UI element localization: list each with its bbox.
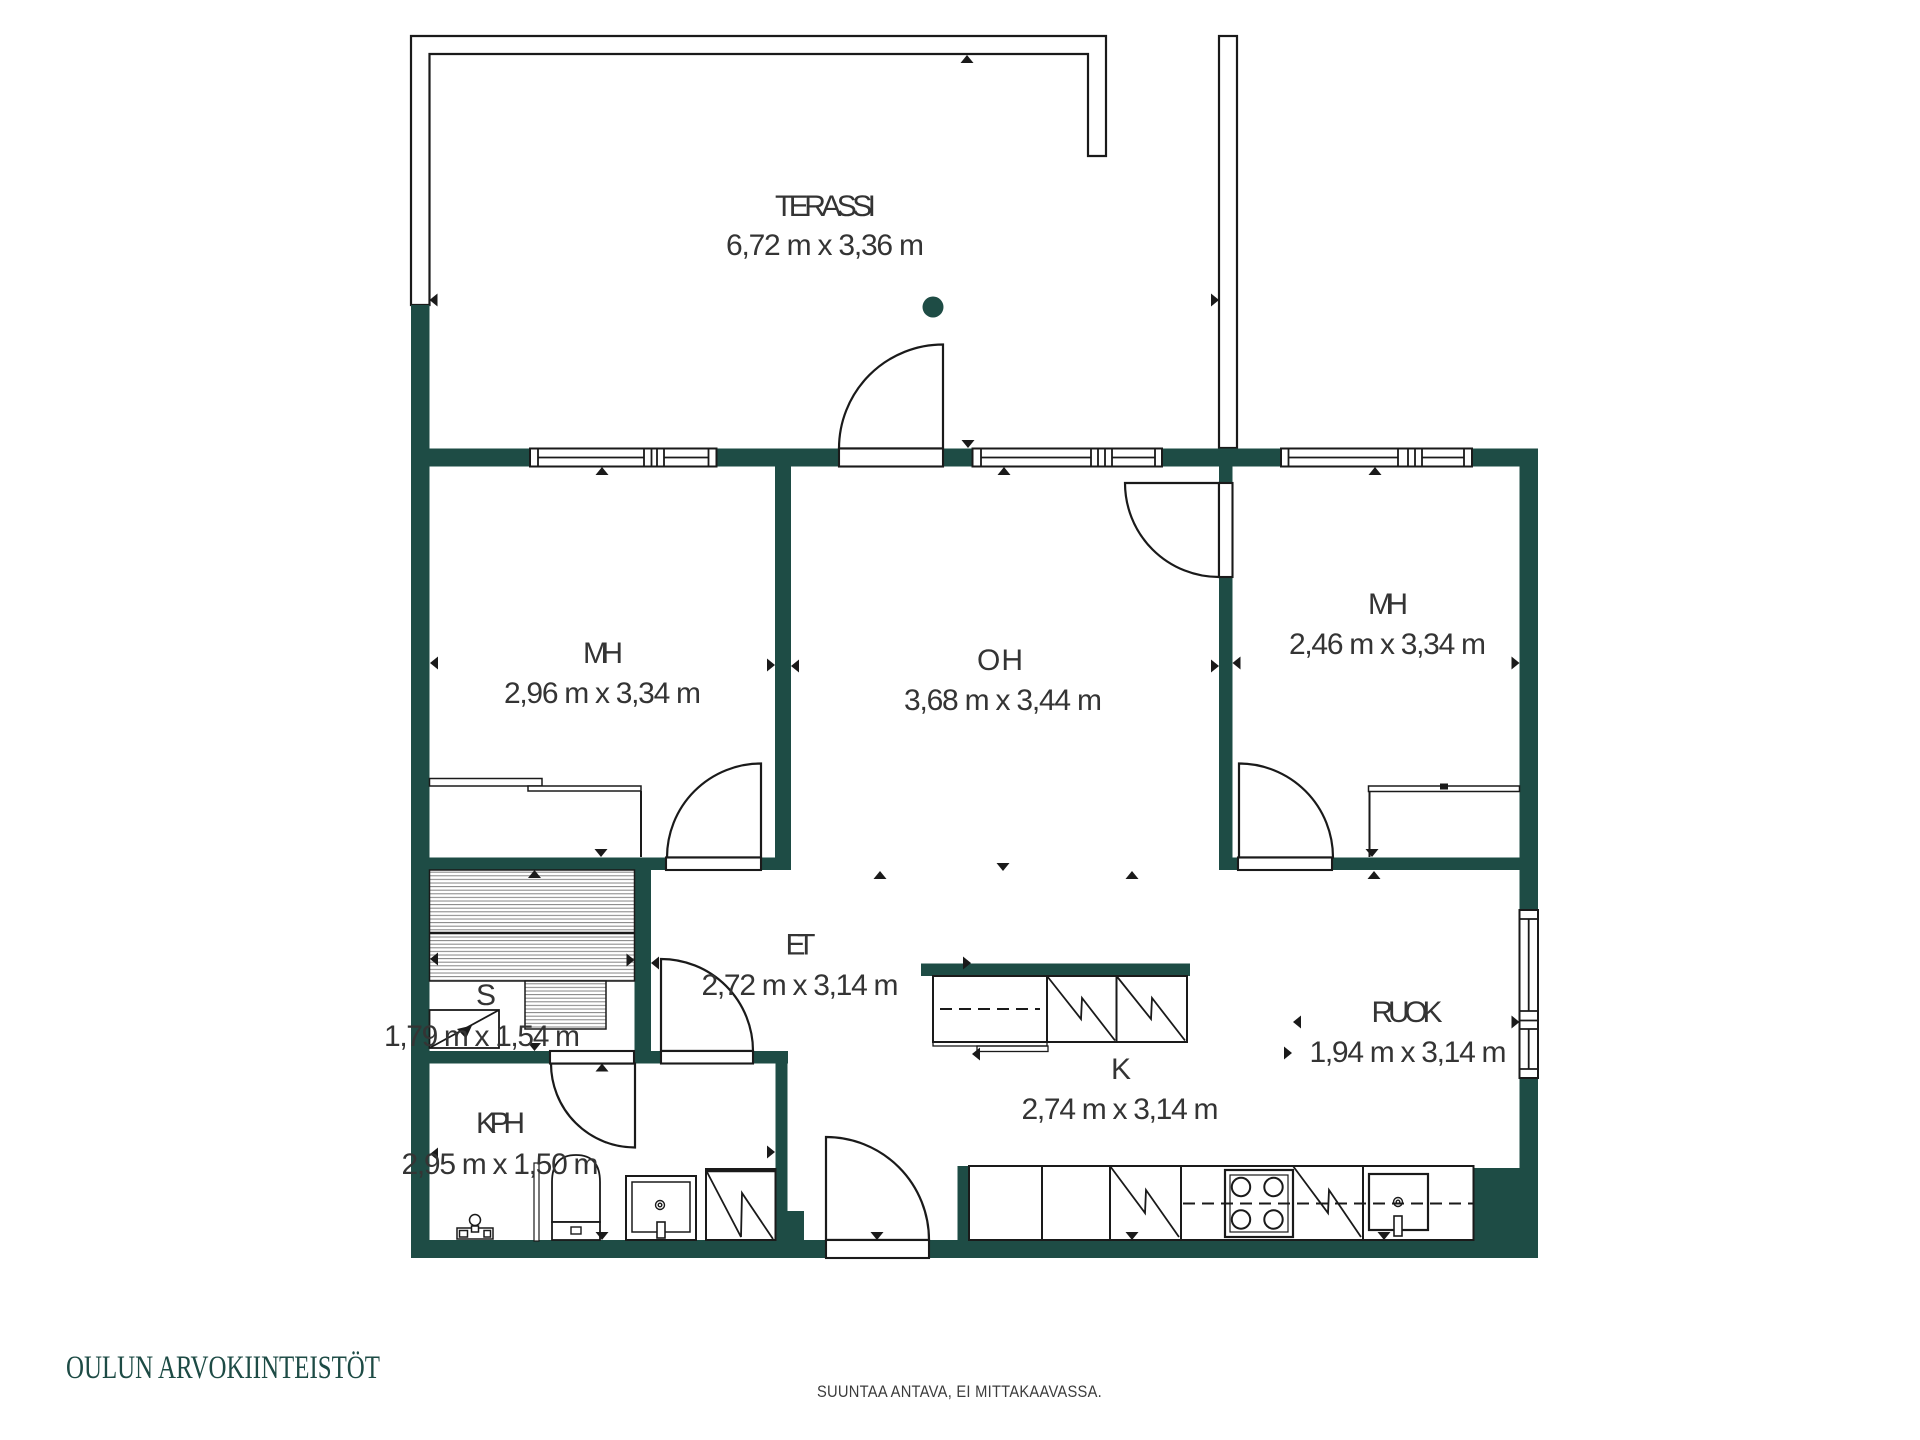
svg-text:S: S: [476, 979, 496, 1012]
svg-text:MH: MH: [1368, 588, 1408, 621]
svg-text:2,95 m x 1,50 m: 2,95 m x 1,50 m: [402, 1148, 599, 1181]
svg-text:1,94 m x 3,14 m: 1,94 m x 3,14 m: [1310, 1036, 1507, 1069]
svg-text:6,72 m x 3,36 m: 6,72 m x 3,36 m: [726, 229, 924, 262]
svg-text:OH: OH: [977, 644, 1023, 677]
svg-text:3,68 m x 3,44 m: 3,68 m x 3,44 m: [904, 684, 1102, 717]
svg-text:2,96 m x 3,34 m: 2,96 m x 3,34 m: [504, 677, 701, 710]
svg-text:MH: MH: [583, 637, 623, 670]
svg-text:TERASSI: TERASSI: [775, 190, 876, 223]
svg-text:K: K: [1111, 1053, 1131, 1086]
svg-text:2,72 m x 3,14 m: 2,72 m x 3,14 m: [702, 969, 899, 1002]
svg-text:SUUNTAA ANTAVA, EI MITTAKAAVAS: SUUNTAA ANTAVA, EI MITTAKAAVASSA.: [817, 1382, 1102, 1401]
svg-text:RUOK: RUOK: [1372, 996, 1443, 1029]
svg-text:2,46 m x 3,34 m: 2,46 m x 3,34 m: [1289, 628, 1486, 661]
svg-text:ET: ET: [786, 929, 816, 962]
svg-text:2,74 m x 3,14 m: 2,74 m x 3,14 m: [1022, 1093, 1219, 1126]
svg-text:KPH: KPH: [476, 1107, 525, 1140]
svg-text:1,79 m x 1,54 m: 1,79 m x 1,54 m: [384, 1020, 580, 1053]
svg-text:OULUN ARVOKIINTEISTÖT: OULUN ARVOKIINTEISTÖT: [66, 1350, 380, 1386]
